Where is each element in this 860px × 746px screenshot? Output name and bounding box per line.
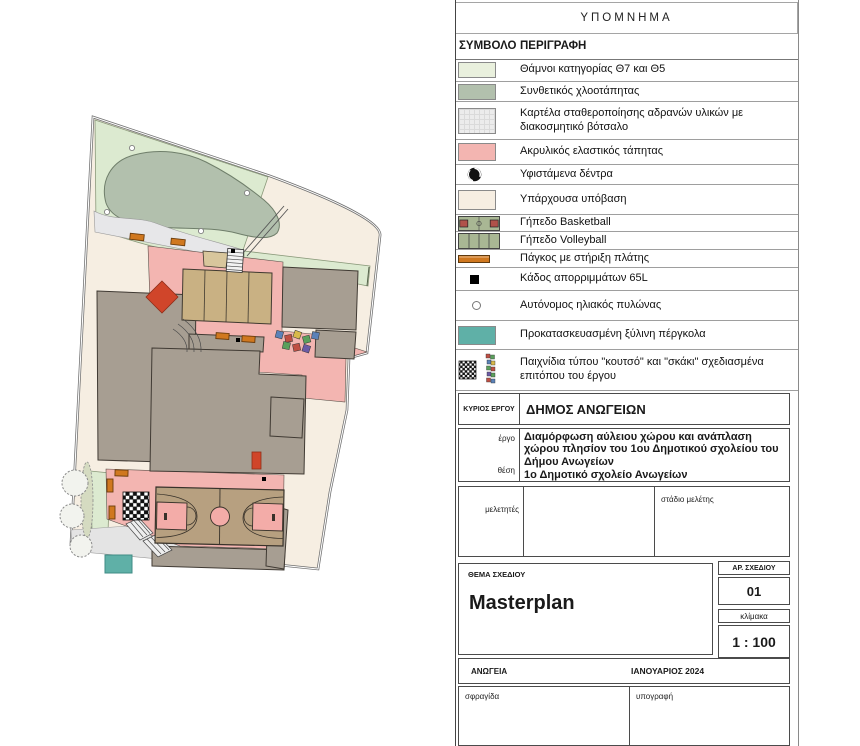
drawing-sheet: { "legend": { "title": "ΥΠΟΜΝΗΜΑ", "col_… — [0, 0, 860, 746]
basketball-court-icon — [455, 216, 520, 231]
drawing-no-value: 01 — [718, 577, 790, 605]
legend-title-box: ΥΠΟΜΝΗΜΑ — [455, 2, 798, 34]
panel-divider-line — [455, 0, 456, 746]
legend-col-description: ΠΕΡΙΓΡΑΦΗ — [520, 40, 586, 52]
legend-row: Κάδος απορριμμάτων 65L — [455, 268, 798, 291]
legend-row-label: Καρτέλα σταθεροποίησης αδρανών υλικών με… — [520, 107, 792, 135]
location-value: 1ο Δημοτικό σχολείο Ανωγείων — [524, 469, 785, 481]
sheet-right-border — [798, 0, 799, 746]
existing-trees — [60, 462, 93, 557]
subject-box: ΘΕΜΑ ΣΧΕΔΙΟΥ Masterplan — [458, 563, 713, 655]
gravel-swatch — [455, 108, 520, 134]
turf-swatch — [455, 84, 520, 100]
drawing-no-label: ΑΡ. ΣΧΕΔΙΟΥ — [718, 561, 790, 575]
acrylic-swatch — [455, 143, 520, 161]
legend-row-label: Γήπεδο Volleyball — [520, 234, 792, 248]
subject-label: ΘΕΜΑ ΣΧΕΔΙΟΥ — [468, 570, 525, 579]
legend-row-label: Γήπεδο Basketball — [520, 216, 792, 230]
project-value: Διαμόρφωση αύλειου χώρου και ανάπλαση χώ… — [524, 431, 785, 468]
bin-icon — [455, 275, 520, 284]
legend-rows: Θάμνοι κατηγορίας Θ7 και Θ5Συνθετικός χλ… — [455, 59, 798, 391]
legend-row-label: Συνθετικός χλοοτάπητας — [520, 85, 792, 99]
title-block: ΚΥΡΙΟΣ ΕΡΓΟΥ ΔΗΜΟΣ ΑΝΩΓΕΙΩΝ έργο θέση Δι… — [455, 391, 800, 746]
legend-row: Ακρυλικός ελαστικός τάπητας — [455, 140, 798, 165]
owner-value: ΔΗΜΟΣ ΑΝΩΓΕΙΩΝ — [520, 394, 789, 424]
legend-row: Θάμνοι κατηγορίας Θ7 και Θ5 — [455, 59, 798, 82]
subject-value: Masterplan — [469, 592, 575, 615]
location-label: θέση — [498, 466, 515, 475]
legend-row-label: Ακρυλικός ελαστικός τάπητας — [520, 145, 792, 159]
legend-row: Υφιστάμενα δέντρα — [455, 165, 798, 185]
legend-row: Προκατασκευασμένη ξύλινη πέργκολα — [455, 321, 798, 350]
scale-value: 1 : 100 — [718, 625, 790, 658]
solar-pylon-icon — [455, 301, 520, 310]
signature-label: υπογραφή — [636, 692, 673, 701]
legend-row-label: Αυτόνομος ηλιακός πυλώνας — [520, 299, 792, 313]
volleyball-court — [182, 269, 272, 324]
legend-row-label: Κάδος απορριμμάτων 65L — [520, 272, 792, 286]
bench-icon — [455, 255, 520, 263]
tree-icon — [455, 167, 520, 182]
designers-label: μελετητές — [485, 505, 519, 514]
pergola — [105, 555, 132, 573]
legend-row-label: Πάγκος με στήριξη πλάτης — [520, 252, 792, 266]
project-box: έργο θέση Διαμόρφωση αύλειου χώρου και α… — [458, 428, 790, 482]
games-icon — [455, 352, 520, 388]
date-label: ΙΑΝΟΥΑΡΙΟΣ 2024 — [631, 666, 704, 676]
legend-title: ΥΠΟΜΝΗΜΑ — [580, 12, 672, 24]
designers-box: μελετητές στάδιο μελέτης — [458, 486, 790, 557]
scale-label: κλίμακα — [718, 609, 790, 623]
legend-row: Γήπεδο Volleyball — [455, 232, 798, 250]
owner-box: ΚΥΡΙΟΣ ΕΡΓΟΥ ΔΗΜΟΣ ΑΝΩΓΕΙΩΝ — [458, 393, 790, 425]
owner-label: ΚΥΡΙΟΣ ΕΡΓΟΥ — [459, 394, 520, 424]
legend-row: Καρτέλα σταθεροποίησης αδρανών υλικών με… — [455, 102, 798, 140]
legend-row-label: Θάμνοι κατηγορίας Θ7 και Θ5 — [520, 63, 792, 77]
legend-row: Παιχνίδια τύπου "κουτσό" και "σκάκι" σχε… — [455, 350, 798, 391]
legend-row-label: Υφιστάμενα δέντρα — [520, 168, 792, 182]
volleyball-court-icon — [455, 233, 520, 249]
basketball-court — [155, 487, 284, 546]
shrubs-swatch — [455, 62, 520, 78]
site-plan-drawing — [55, 95, 425, 595]
stamp-label: σφραγίδα — [465, 692, 499, 701]
designers-empty-cell — [524, 487, 655, 556]
legend-row-label: Υπάρχουσα υπόβαση — [520, 193, 792, 207]
legend-row: Υπάρχουσα υπόβαση — [455, 185, 798, 215]
stage-label: στάδιο μελέτης — [661, 495, 714, 504]
legend-row: Συνθετικός χλοοτάπητας — [455, 82, 798, 102]
legend-col-symbol: ΣΥΜΒΟΛΟ — [455, 40, 520, 52]
legend-row: Πάγκος με στήριξη πλάτης — [455, 250, 798, 268]
project-label: έργο — [498, 434, 515, 443]
city-label: ΑΝΩΓΕΙΑ — [459, 667, 631, 676]
place-date-box: ΑΝΩΓΕΙΑ ΙΑΝΟΥΑΡΙΟΣ 2024 — [458, 658, 790, 684]
stamp-signature-box: σφραγίδα υπογραφή — [458, 686, 790, 746]
substrate-swatch — [455, 190, 520, 210]
legend-row: Γήπεδο Basketball — [455, 215, 798, 232]
legend-column-headers: ΣΥΜΒΟΛΟ ΠΕΡΙΓΡΑΦΗ — [455, 33, 798, 60]
legend-row-label: Προκατασκευασμένη ξύλινη πέργκολα — [520, 328, 792, 342]
legend-panel: ΥΠΟΜΝΗΜΑ ΣΥΜΒΟΛΟ ΠΕΡΙΓΡΑΦΗ Θάμνοι κατηγο… — [455, 0, 798, 391]
hopscotch-chess-games — [123, 492, 149, 520]
legend-row: Αυτόνομος ηλιακός πυλώνας — [455, 291, 798, 321]
legend-row-label: Παιχνίδια τύπου "κουτσό" και "σκάκι" σχε… — [520, 356, 792, 384]
pergola-swatch — [455, 326, 520, 345]
